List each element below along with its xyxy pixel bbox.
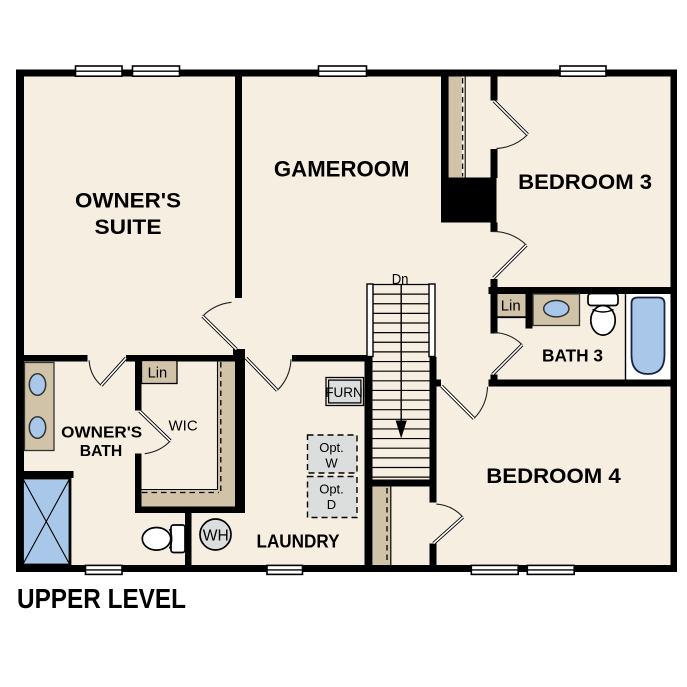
svg-text:OWNER'S: OWNER'S xyxy=(75,189,181,213)
svg-text:BEDROOM 3: BEDROOM 3 xyxy=(518,170,652,194)
svg-text:BEDROOM 4: BEDROOM 4 xyxy=(486,464,621,488)
svg-text:UPPER LEVEL: UPPER LEVEL xyxy=(17,583,186,614)
svg-text:Opt.: Opt. xyxy=(319,440,344,455)
svg-text:FURN: FURN xyxy=(325,384,363,400)
svg-text:SUITE: SUITE xyxy=(95,215,162,239)
svg-text:W: W xyxy=(325,455,338,470)
svg-text:Dn: Dn xyxy=(392,271,409,288)
svg-text:Opt.: Opt. xyxy=(319,482,344,497)
svg-text:Lin: Lin xyxy=(148,364,168,381)
svg-text:BATH: BATH xyxy=(80,443,123,460)
svg-text:BATH 3: BATH 3 xyxy=(542,346,603,366)
svg-text:LAUNDRY: LAUNDRY xyxy=(257,531,341,552)
svg-text:D: D xyxy=(327,497,336,512)
svg-text:GAMEROOM: GAMEROOM xyxy=(274,156,410,181)
svg-text:WH: WH xyxy=(203,528,229,545)
svg-text:WIC: WIC xyxy=(169,418,198,435)
svg-text:OWNER'S: OWNER'S xyxy=(61,425,142,442)
svg-text:Lin: Lin xyxy=(501,297,521,314)
